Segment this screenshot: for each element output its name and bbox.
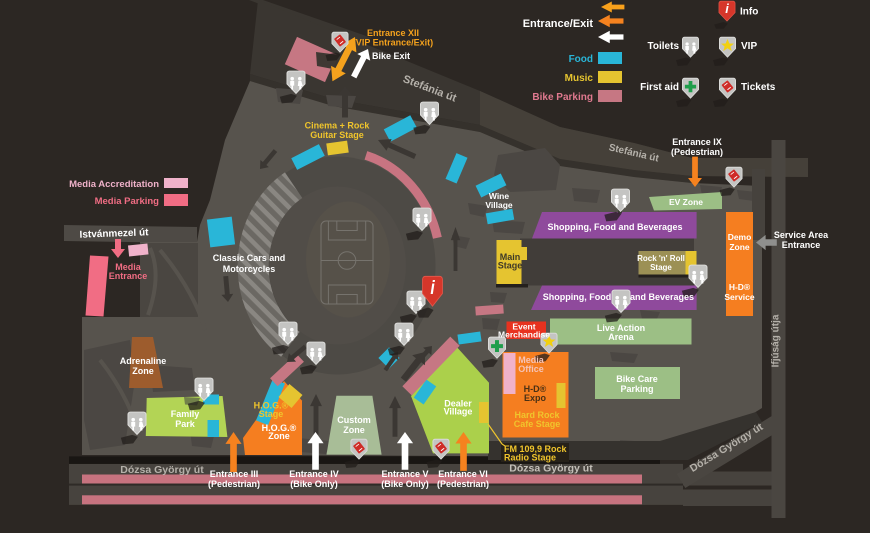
svg-text:Radio Stage: Radio Stage [504, 453, 556, 463]
svg-text:Zone: Zone [268, 431, 290, 441]
svg-text:Guitar Stage: Guitar Stage [310, 130, 364, 140]
svg-text:(Bike Only): (Bike Only) [290, 479, 338, 489]
svg-text:Bike Parking: Bike Parking [532, 92, 593, 103]
svg-text:Bike Care: Bike Care [616, 374, 658, 384]
svg-text:VIP: VIP [741, 41, 757, 52]
svg-text:Zone: Zone [343, 425, 365, 435]
svg-text:Entrance XII: Entrance XII [367, 28, 419, 38]
svg-text:and Beverages: and Beverages [630, 292, 694, 302]
svg-text:Entrance VI: Entrance VI [438, 469, 488, 479]
svg-text:Entrance/Exit: Entrance/Exit [523, 18, 594, 30]
svg-text:Service Area: Service Area [774, 230, 829, 240]
svg-text:Village: Village [444, 407, 473, 417]
svg-text:Stage: Stage [259, 409, 284, 419]
svg-text:First aid: First aid [640, 82, 679, 93]
svg-text:Shopping, Food and Beverages: Shopping, Food and Beverages [547, 222, 682, 232]
svg-text:Expo: Expo [524, 393, 547, 403]
svg-text:Food: Food [569, 54, 593, 65]
svg-text:Parking: Parking [620, 384, 653, 394]
svg-text:Dózsa György út: Dózsa György út [120, 464, 204, 476]
svg-text:Demo: Demo [728, 232, 752, 242]
svg-text:Bike Exit: Bike Exit [372, 51, 410, 61]
svg-text:Zone: Zone [132, 366, 154, 376]
svg-text:Entrance IV: Entrance IV [289, 469, 339, 479]
svg-text:Media Accreditation: Media Accreditation [69, 179, 159, 190]
svg-text:Family: Family [171, 409, 200, 419]
svg-text:Park: Park [175, 419, 196, 429]
svg-text:Info: Info [740, 7, 758, 18]
svg-text:Music: Music [565, 73, 594, 84]
svg-text:Merchandise: Merchandise [498, 330, 550, 340]
svg-text:Shopping, Food: Shopping, Food [543, 292, 611, 302]
svg-text:Custom: Custom [337, 415, 371, 425]
svg-text:Entrance: Entrance [109, 271, 148, 281]
svg-text:Motorcycles: Motorcycles [223, 264, 276, 274]
svg-text:Entrance V: Entrance V [381, 469, 428, 479]
svg-text:(Pedestrian): (Pedestrian) [671, 147, 723, 157]
svg-text:Zone: Zone [729, 242, 750, 252]
svg-text:Service: Service [724, 292, 755, 302]
svg-text:Media Parking: Media Parking [95, 196, 160, 207]
svg-text:H-D®: H-D® [729, 282, 751, 292]
svg-text:Office: Office [518, 364, 544, 374]
svg-text:Toilets: Toilets [648, 41, 680, 52]
svg-text:Tickets: Tickets [741, 82, 776, 93]
svg-text:Entrance III: Entrance III [210, 469, 259, 479]
svg-text:Rock 'n' Roll: Rock 'n' Roll [637, 254, 685, 263]
svg-text:Stage: Stage [498, 261, 523, 271]
svg-text:Stage: Stage [650, 263, 672, 272]
svg-text:Village: Village [485, 200, 513, 210]
svg-text:Arena: Arena [608, 332, 635, 342]
svg-text:Adrenaline: Adrenaline [120, 356, 167, 366]
svg-text:Dózsa György út: Dózsa György út [509, 463, 593, 475]
svg-text:Cinema + Rock: Cinema + Rock [305, 121, 371, 131]
svg-text:Cafe Stage: Cafe Stage [514, 419, 561, 429]
svg-text:Entrance IX: Entrance IX [672, 137, 722, 147]
svg-text:Entrance: Entrance [782, 240, 821, 250]
svg-text:EV Zone: EV Zone [669, 197, 703, 207]
svg-text:Ifjúság útja: Ifjúság útja [771, 314, 782, 367]
svg-text:(Bike Only): (Bike Only) [381, 479, 429, 489]
svg-text:Classic Cars and: Classic Cars and [213, 253, 286, 263]
svg-text:(Pedestrian): (Pedestrian) [208, 479, 260, 489]
svg-text:(VIP Entrance/Exit): (VIP Entrance/Exit) [353, 38, 433, 48]
svg-text:(Pedestrian): (Pedestrian) [437, 479, 489, 489]
